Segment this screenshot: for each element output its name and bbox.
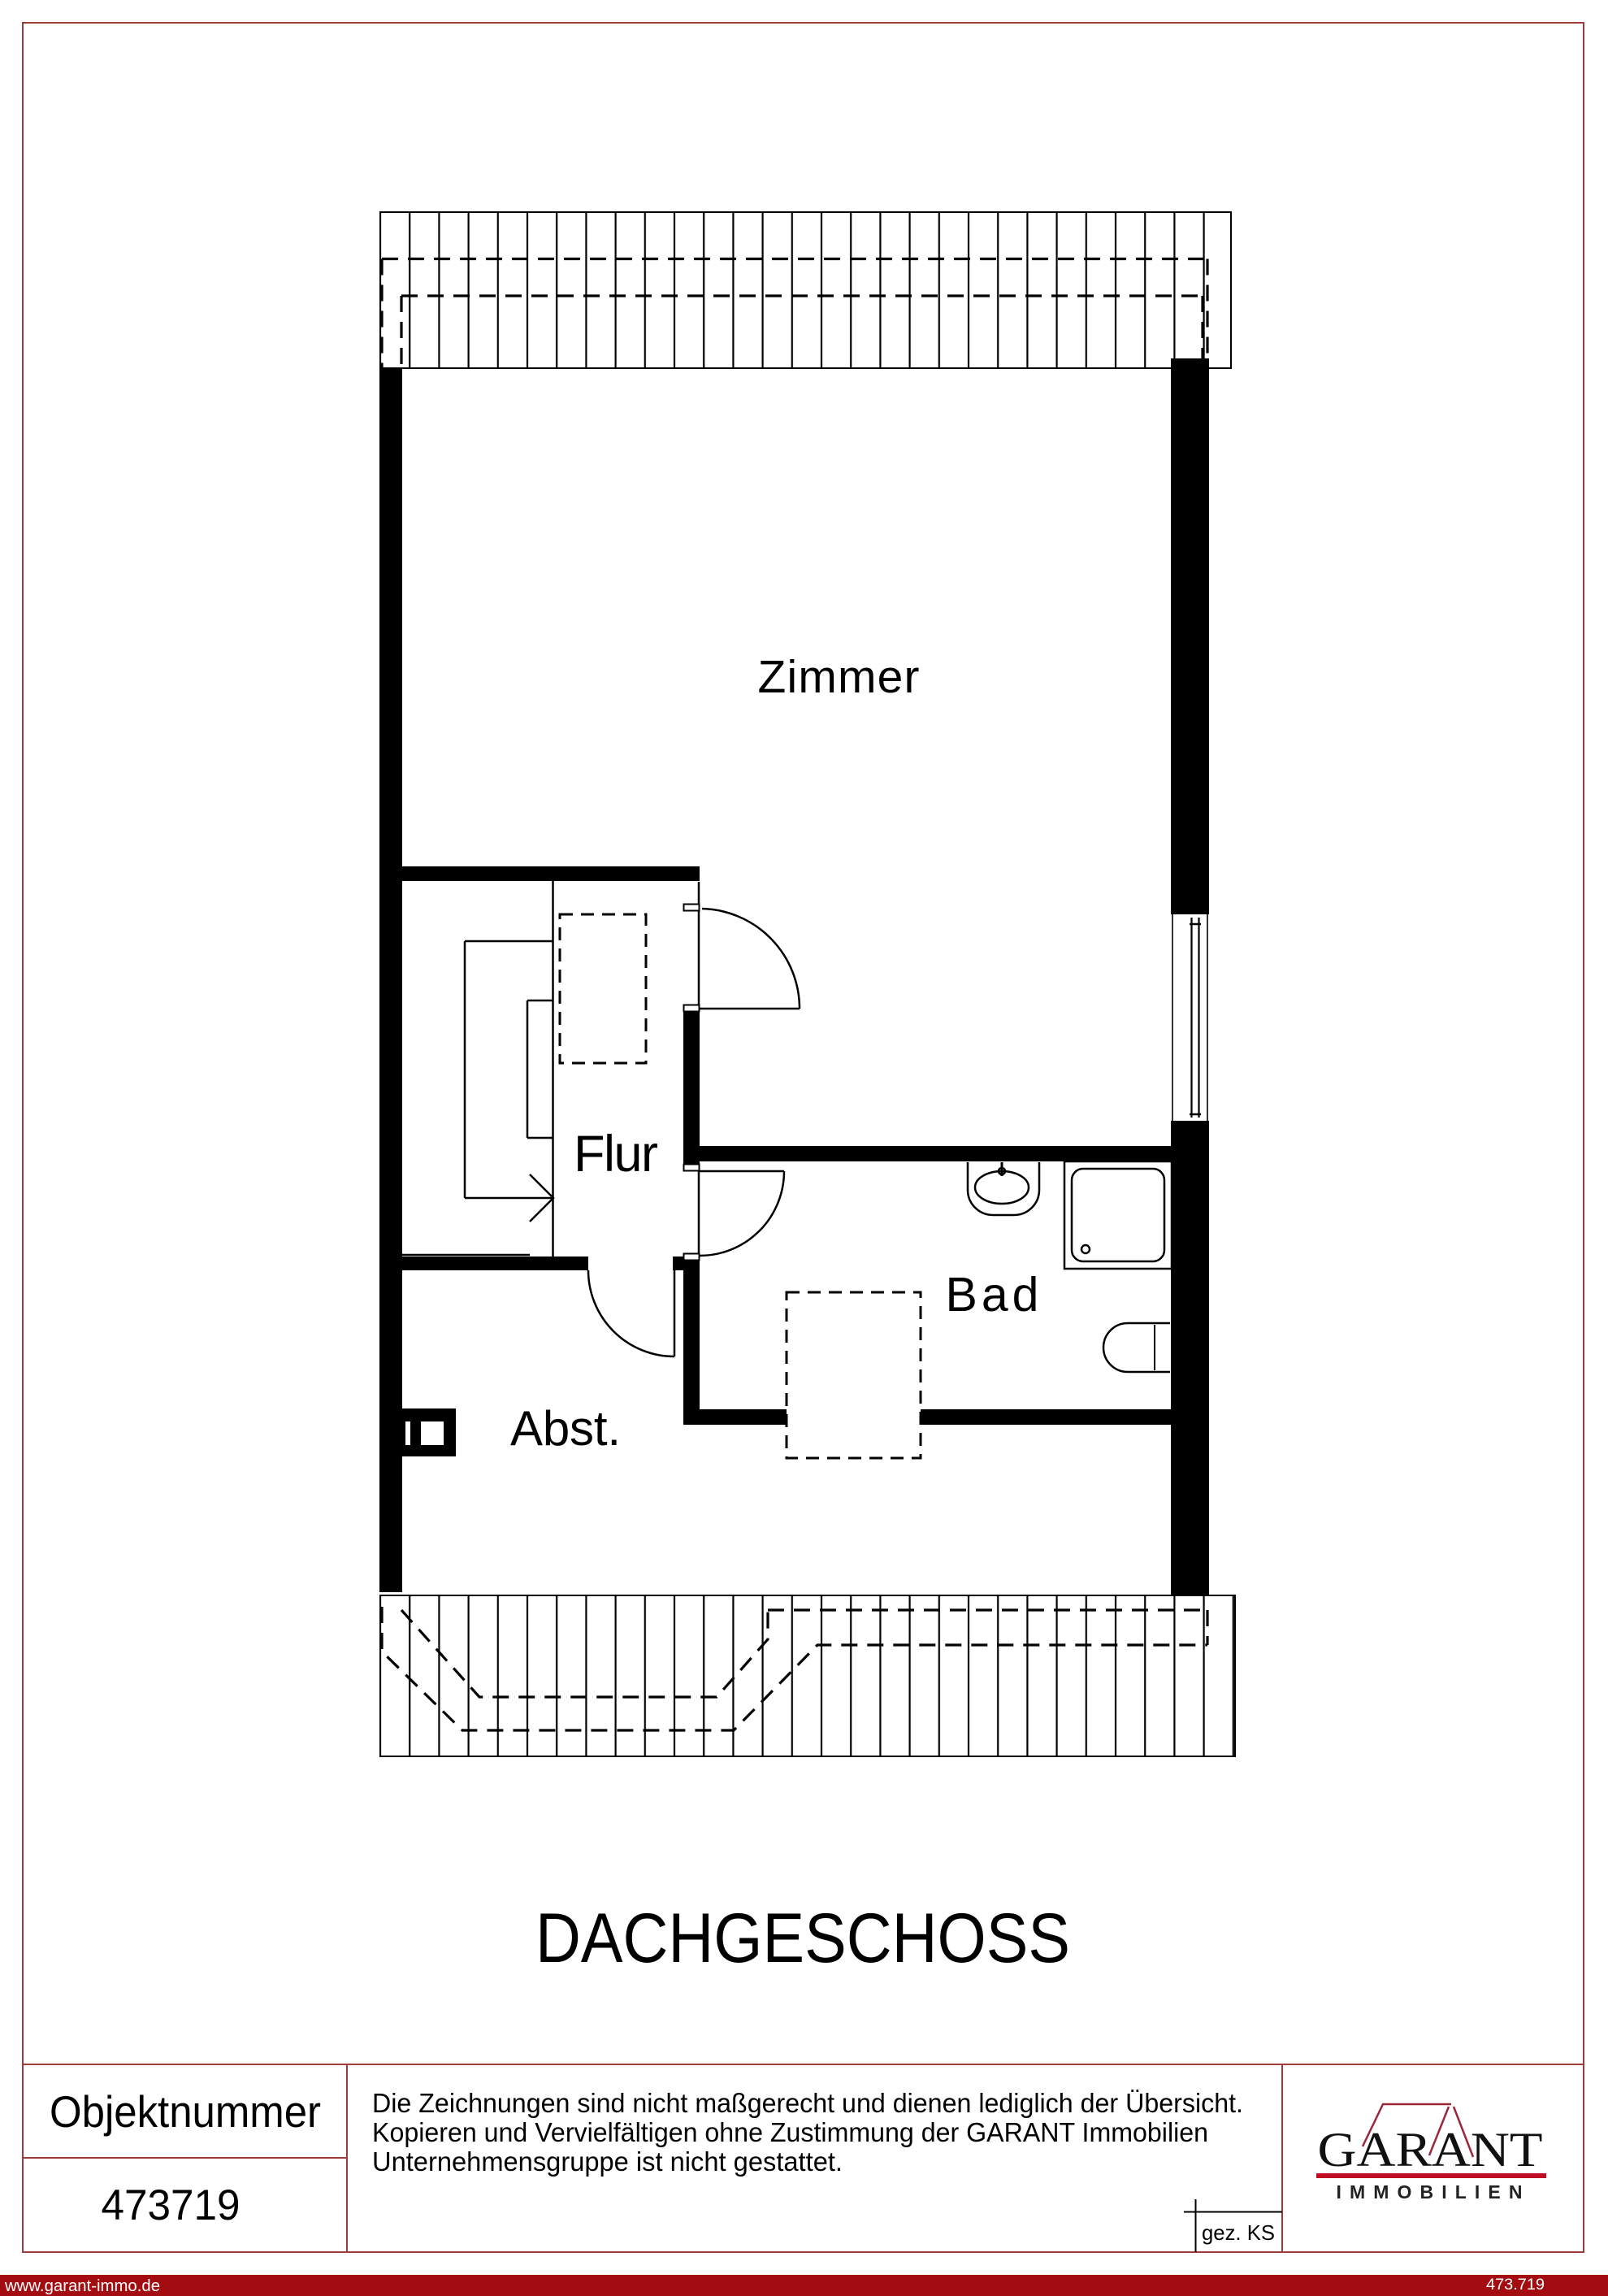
svg-text:473719: 473719 <box>102 2181 241 2229</box>
svg-text:Unternehmensgruppe ist nicht g: Unternehmensgruppe ist nicht gestattet. <box>372 2146 843 2177</box>
svg-text:473.719: 473.719 <box>1486 2276 1545 2294</box>
svg-text:IMMOBILIEN: IMMOBILIEN <box>1337 2181 1523 2203</box>
svg-text:Abst.: Abst. <box>510 1401 621 1456</box>
svg-text:www.garant-immo.de: www.garant-immo.de <box>4 2277 160 2295</box>
svg-text:Objektnummer: Objektnummer <box>50 2086 321 2137</box>
svg-text:Flur: Flur <box>574 1126 658 1183</box>
svg-text:Kopieren und Vervielfältigen o: Kopieren und Vervielfältigen ohne Zustim… <box>372 2117 1208 2147</box>
svg-text:Zimmer: Zimmer <box>758 651 920 703</box>
svg-text:DACHGESCHOSS: DACHGESCHOSS <box>535 1899 1070 1977</box>
svg-text:GARANT: GARANT <box>1318 2123 1543 2177</box>
svg-text:Die Zeichnungen sind nicht maß: Die Zeichnungen sind nicht maßgerecht un… <box>372 2088 1243 2118</box>
svg-text:gez. KS: gez. KS <box>1202 2220 1275 2245</box>
svg-text:Bad: Bad <box>946 1268 1039 1322</box>
